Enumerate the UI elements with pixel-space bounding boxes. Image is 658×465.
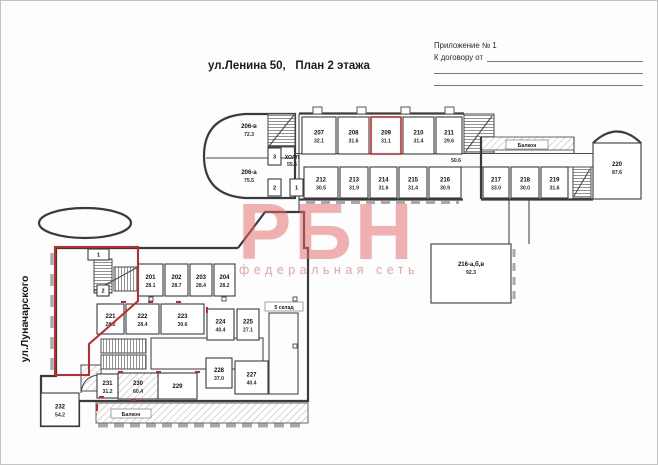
room-227: 22740.4 <box>235 361 268 394</box>
room-number: 228 <box>214 368 225 374</box>
room-area: 28.1 <box>145 283 155 289</box>
watermark-tagline: федеральная сеть <box>239 263 419 277</box>
room-211: 21129.6 <box>436 117 462 154</box>
room-225: 22527.1 <box>237 309 259 340</box>
column <box>149 297 153 301</box>
vent <box>401 107 410 114</box>
room-number: 202 <box>171 275 182 281</box>
column <box>222 297 226 301</box>
vent <box>313 107 322 114</box>
room-area: 29.6 <box>444 138 454 144</box>
room-3: 3 <box>268 148 281 165</box>
warehouse-label: 5 склад <box>274 305 294 311</box>
room-228: 22837.0 <box>206 358 232 388</box>
room-232: 23254.2 <box>41 393 79 426</box>
room-number: 203 <box>196 275 207 281</box>
room-209: 20931.1 <box>371 117 401 154</box>
room-number: 216-а,б,в <box>458 261 484 268</box>
room-area: 30.0 <box>520 185 530 191</box>
hall-area: 55.6 <box>287 162 297 168</box>
room-220: 22087.6 <box>593 143 641 199</box>
room-number: 3 <box>273 155 276 161</box>
room-224: 22440.4 <box>207 309 234 340</box>
room-area: 54.2 <box>55 412 65 418</box>
room-221: 22128.2 <box>97 304 124 334</box>
room-219: 21931.6 <box>541 167 568 198</box>
room-202: 20228.7 <box>165 264 188 296</box>
room-number: 232 <box>55 404 66 410</box>
room-number: 204 <box>219 275 230 281</box>
room-number: 218 <box>520 177 531 183</box>
page: 206-в72.3206-а75.520732.120831.620931.12… <box>0 0 658 465</box>
room-area: 37.0 <box>214 376 224 382</box>
room-area: 40.4 <box>246 380 256 386</box>
room-207: 20732.1 <box>302 117 336 154</box>
room-210: 21031.4 <box>403 117 434 154</box>
room-area: 31.4 <box>413 138 423 144</box>
room-number: 229 <box>172 384 183 390</box>
room-216: 21630.9 <box>429 167 461 198</box>
room-number: 222 <box>137 314 148 320</box>
room-area: 31.1 <box>381 138 391 144</box>
balcony-bottom-label: Балкон <box>122 412 141 418</box>
page-title: ул.Ленина 50, План 2 этажа <box>208 60 371 72</box>
room-area: 92.3 <box>466 270 476 276</box>
vent <box>445 107 454 114</box>
room-number: 231 <box>102 381 113 387</box>
room-number: 227 <box>246 372 257 378</box>
room-area: 30.6 <box>177 322 187 328</box>
room-number: 225 <box>243 319 254 325</box>
room-216-а,б,в: 216-а,б,в92.3 <box>431 244 511 303</box>
room-number: 216 <box>440 177 451 183</box>
balcony-top-label: Балкон <box>518 143 537 149</box>
room-area: 28.7 <box>171 283 181 289</box>
room-number: 207 <box>314 130 325 136</box>
room-area: 32.1 <box>314 138 324 144</box>
arc-wall <box>593 132 641 144</box>
street-label: ул.Луначарского <box>19 276 31 363</box>
room-230: 23060.4 <box>118 373 158 399</box>
room-number: 215 <box>408 177 419 183</box>
room-1: 1 <box>88 249 109 260</box>
room-number: 210 <box>413 130 424 136</box>
room-218: 21830.0 <box>511 167 539 198</box>
room-area: 31.6 <box>549 185 559 191</box>
room-area: 87.6 <box>612 170 622 176</box>
room-area: 28.4 <box>196 283 206 289</box>
floor-plan-svg: 206-в72.3206-а75.520732.120831.620931.12… <box>1 1 658 465</box>
room-217: 21733.0 <box>483 167 509 198</box>
room-area: 75.5 <box>244 178 254 184</box>
annex-label: К договору от <box>434 53 483 62</box>
room-area: 60.4 <box>133 389 143 395</box>
room-208: 20831.6 <box>338 117 369 154</box>
room-number: 206-в <box>241 124 257 130</box>
watermark: РБН федеральная сеть <box>238 187 419 277</box>
room-number: 206-а <box>241 170 257 176</box>
room-number: 208 <box>348 130 359 136</box>
room-area: 31.6 <box>348 138 358 144</box>
room-number: 219 <box>549 177 560 183</box>
stairs-icon <box>101 339 146 353</box>
room-number: 1 <box>97 253 100 259</box>
room-201: 20128.1 <box>138 264 163 296</box>
room-area: 30.9 <box>440 185 450 191</box>
room-area: 28.4 <box>137 322 147 328</box>
room-number: 230 <box>133 381 144 387</box>
room-number: 213 <box>349 177 360 183</box>
column <box>293 344 297 348</box>
annex-line1: Приложение № 1 <box>434 41 497 50</box>
room-231: 23131.2 <box>97 374 118 398</box>
room-area: 72.3 <box>244 132 254 138</box>
stairs-icon <box>101 355 146 369</box>
room-204: 20428.2 <box>214 264 235 296</box>
corridor-area-label: 50.6 <box>451 158 461 164</box>
room-number: 214 <box>378 177 389 183</box>
room-area: 27.1 <box>243 327 253 333</box>
hall-label: ХОЛЛ <box>285 155 300 161</box>
room-number: 224 <box>215 319 226 325</box>
room-number: 220 <box>612 162 623 168</box>
vent <box>357 107 366 114</box>
room-number: 223 <box>177 314 188 320</box>
room-number: 211 <box>444 130 454 136</box>
room-206-в: 206-в72.3 <box>241 124 257 138</box>
room-203: 20328.4 <box>190 264 212 296</box>
room-area: 28.2 <box>219 283 229 289</box>
room-number: 212 <box>316 177 327 183</box>
rotunda-outline <box>39 208 131 238</box>
room-area: 33.0 <box>491 185 501 191</box>
room-area: 40.4 <box>215 327 225 333</box>
room-number: 201 <box>145 275 156 281</box>
room-number: 217 <box>491 177 502 183</box>
stairs-icon <box>114 267 138 291</box>
room-223: 22330.6 <box>161 304 204 334</box>
warehouse-room <box>269 313 298 394</box>
room-2: 2 <box>97 285 109 296</box>
room-number: 209 <box>381 130 392 136</box>
column <box>293 297 297 301</box>
room-229: 229 <box>158 373 197 399</box>
room-area: 31.2 <box>102 389 112 395</box>
room-number: 2 <box>101 289 104 295</box>
room-206-а: 206-а75.5 <box>241 170 257 184</box>
room-number: 221 <box>105 314 116 320</box>
